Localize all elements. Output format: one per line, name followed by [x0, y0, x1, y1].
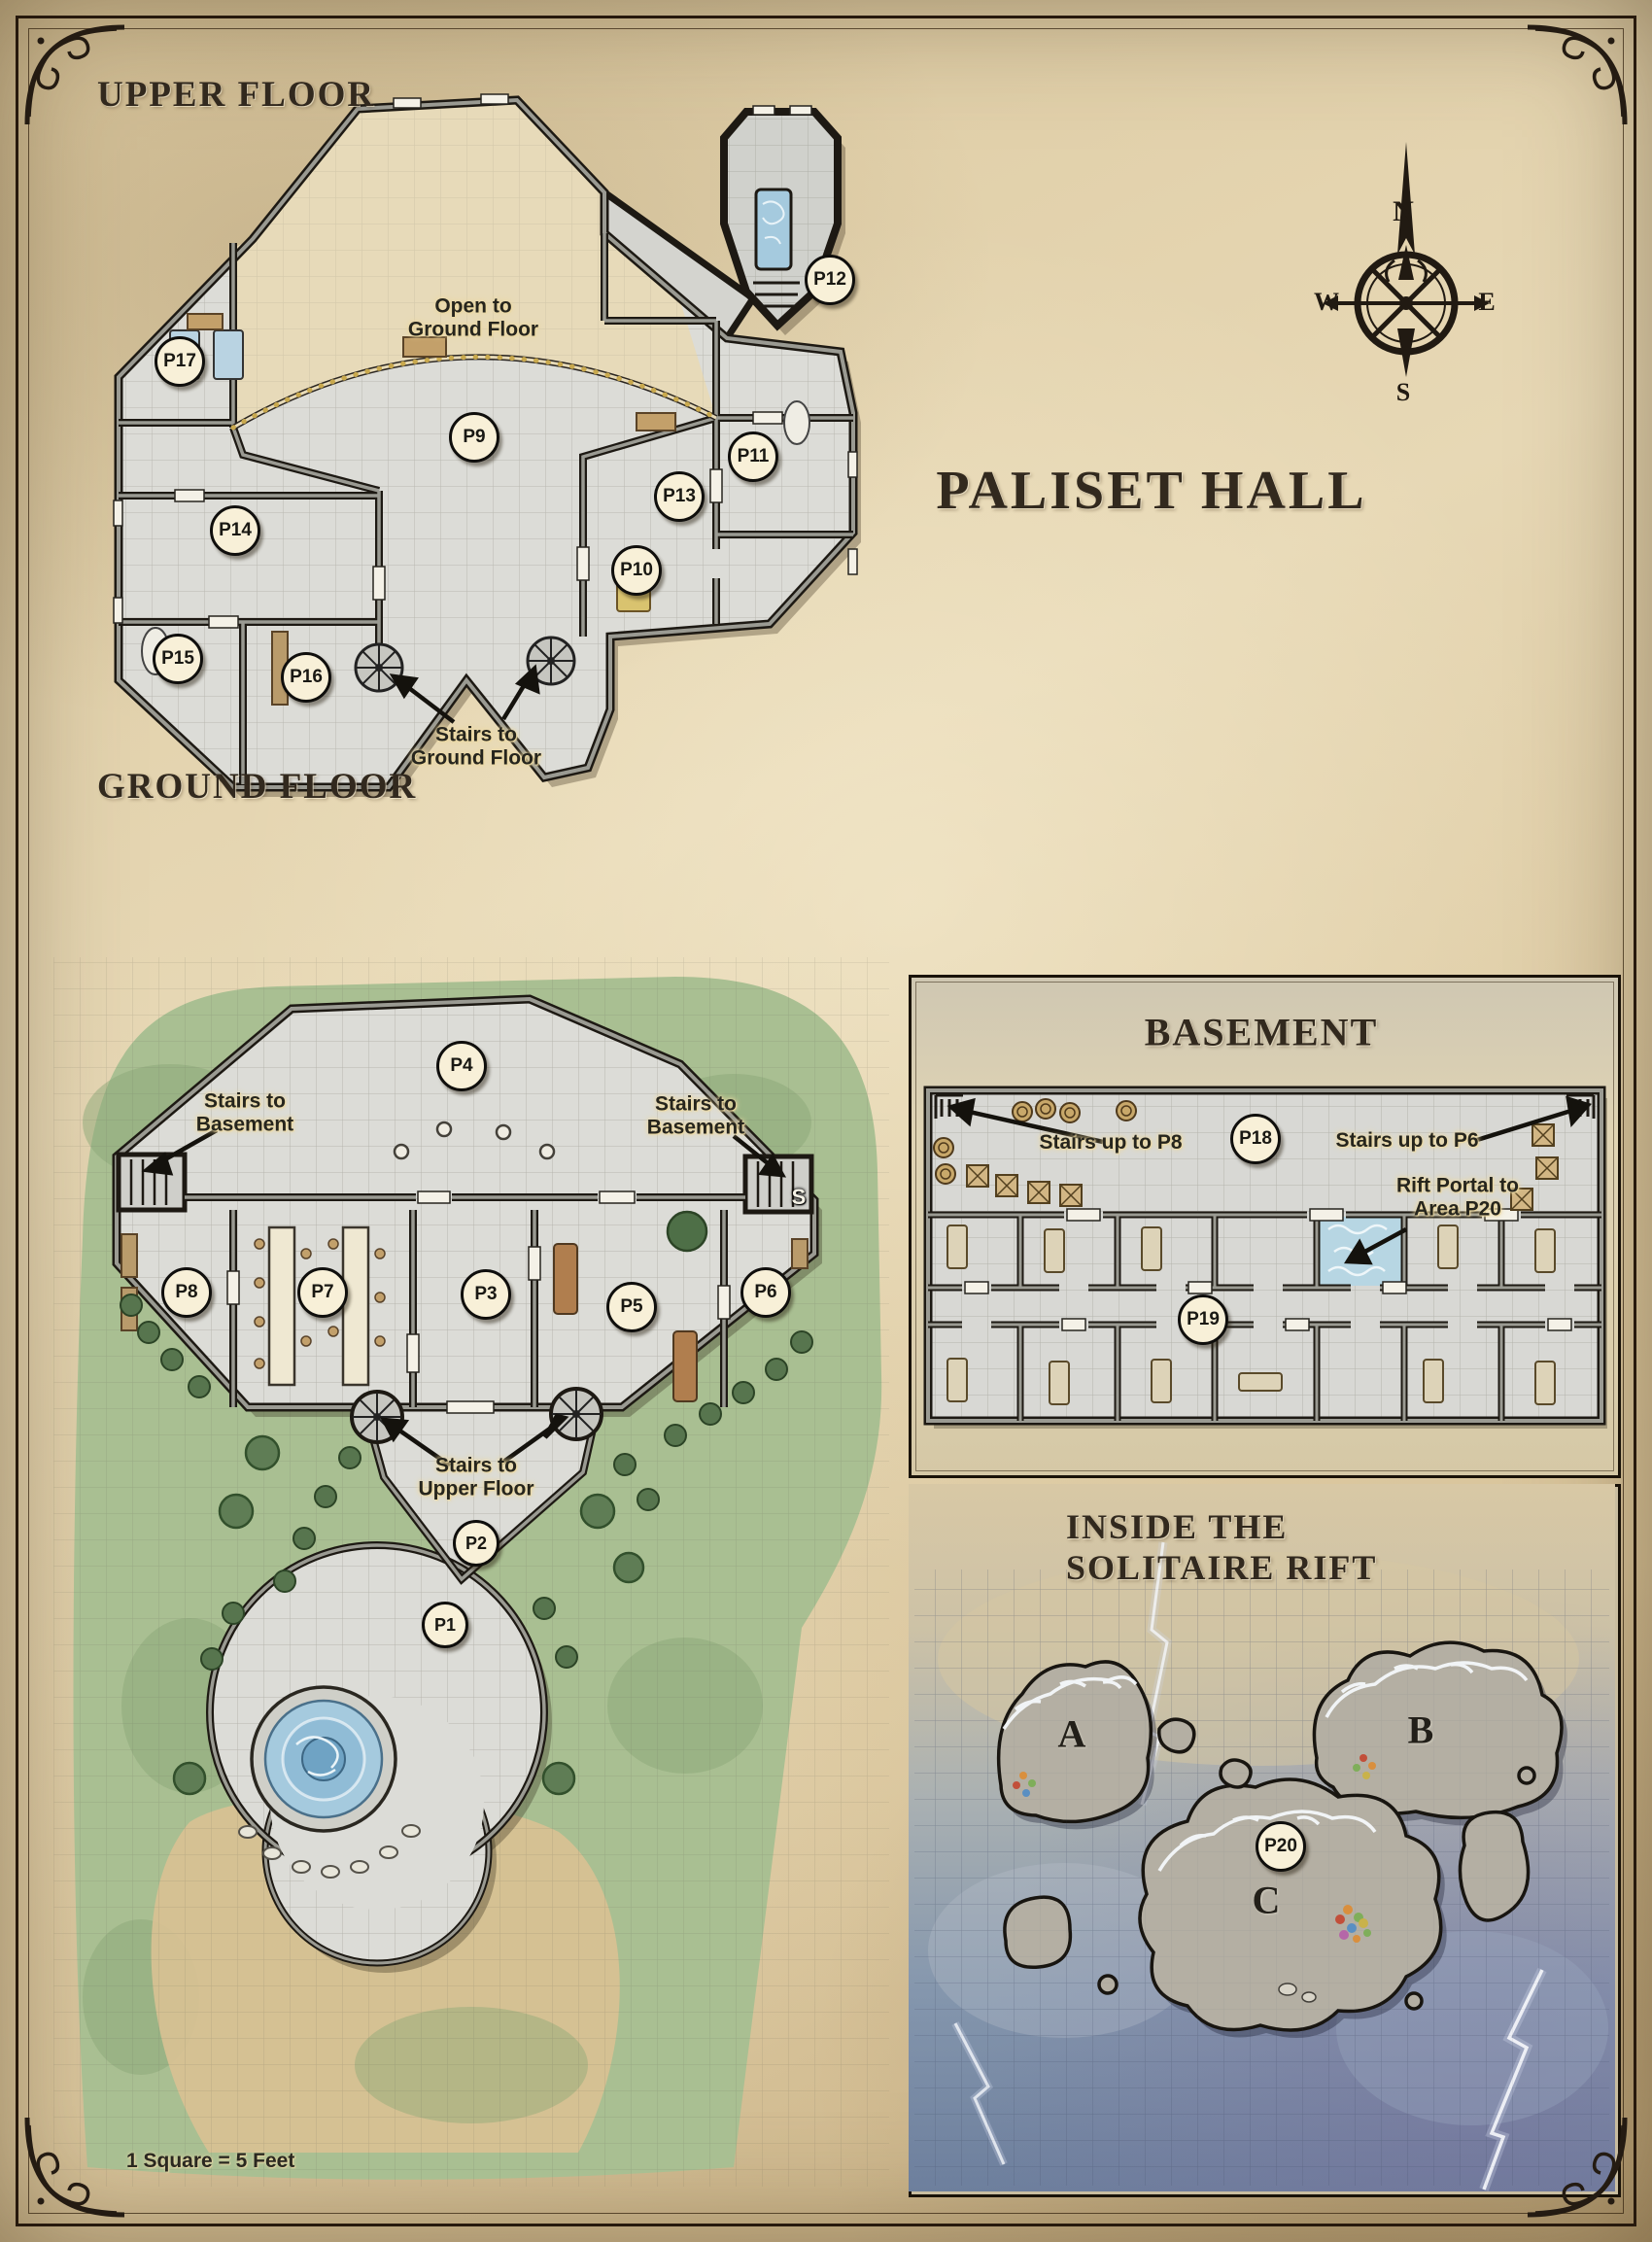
room-badge-p16: P16: [281, 652, 331, 703]
fountain: [252, 1687, 396, 1831]
compass-letter-w: W: [1314, 288, 1339, 317]
room-badge-p8: P8: [161, 1267, 212, 1318]
compass-rose: [1319, 136, 1494, 418]
scale-note: 1 Square = 5 Feet: [126, 2150, 294, 2173]
room-badge-p6: P6: [740, 1267, 791, 1318]
corner-flourish-bottom-right: [1526, 2116, 1633, 2223]
heading-basement: Basement: [1145, 1010, 1379, 1055]
desk: [188, 314, 223, 329]
note-stairs-to-basement-left: Stairs to Basement: [196, 1089, 293, 1135]
note-stairs-to-basement-right: Stairs to Basement: [647, 1092, 744, 1138]
spiral-staircase: [551, 1389, 602, 1439]
room-badge-p9: P9: [449, 412, 499, 463]
compass-letter-n: N: [1393, 195, 1414, 228]
bathtub: [784, 401, 809, 444]
desk: [637, 413, 675, 431]
room-badge-p5: P5: [606, 1282, 657, 1332]
heading-ground-floor: Ground Floor: [97, 766, 417, 808]
page-title: Paliset Hall: [936, 460, 1366, 522]
note-stairs-up-to-p6: Stairs up to P6: [1335, 1129, 1478, 1153]
note-rift-portal: Rift Portal to Area P20: [1396, 1174, 1519, 1220]
room-badge-p17: P17: [155, 336, 205, 387]
room-badge-p13: P13: [654, 471, 705, 522]
room-badge-p10: P10: [611, 545, 662, 596]
room-badge-p18: P18: [1230, 1114, 1281, 1164]
island-label-b: B: [1408, 1707, 1434, 1753]
room-badge-p4: P4: [436, 1041, 487, 1091]
compass-letter-s: S: [1396, 378, 1410, 407]
spiral-staircase: [356, 644, 402, 691]
note-open-to-ground-floor: Open to Ground Floor: [408, 294, 538, 340]
room-badge-p15: P15: [153, 634, 203, 684]
room-badge-p14: P14: [210, 505, 260, 556]
cabinet: [121, 1234, 137, 1277]
banquet-table: [269, 1227, 294, 1385]
room-badge-p3: P3: [461, 1269, 511, 1320]
bed: [214, 330, 243, 379]
banquet-table: [343, 1227, 368, 1385]
heading-solitaire-rift: Inside the Solitaire Rift: [1066, 1506, 1457, 1588]
room-badge-p20: P20: [1256, 1821, 1306, 1872]
corner-flourish-top-left: [19, 19, 126, 126]
note-stairs-to-ground-floor: Stairs to Ground Floor: [411, 723, 541, 769]
compass-letter-e: E: [1478, 288, 1495, 317]
room-badge-p1: P1: [422, 1602, 468, 1648]
note-stairs-to-upper-floor: Stairs to Upper Floor: [419, 1454, 534, 1500]
room-badge-p2: P2: [453, 1520, 499, 1567]
ground-floor-map: [53, 831, 889, 2187]
island-label-a: A: [1058, 1711, 1086, 1757]
room-badge-p11: P11: [728, 431, 778, 482]
heading-upper-floor: Upper Floor: [97, 74, 375, 116]
island-label-c: C: [1253, 1878, 1281, 1923]
corner-flourish-top-right: [1526, 19, 1633, 126]
cabinet: [792, 1239, 808, 1268]
room-badge-p7: P7: [297, 1267, 348, 1318]
stairs-marker-s: S: [792, 1185, 807, 1210]
room-badge-p19: P19: [1178, 1294, 1228, 1345]
sofa: [673, 1331, 697, 1401]
room-badge-p12: P12: [805, 255, 855, 305]
corner-flourish-bottom-left: [19, 2116, 126, 2223]
sofa: [554, 1244, 577, 1314]
map-page: Upper Floor Ground Floor Paliset Hall Ba…: [0, 0, 1652, 2242]
potted-tree: [668, 1212, 706, 1251]
note-stairs-up-to-p8: Stairs up to P8: [1039, 1131, 1182, 1155]
